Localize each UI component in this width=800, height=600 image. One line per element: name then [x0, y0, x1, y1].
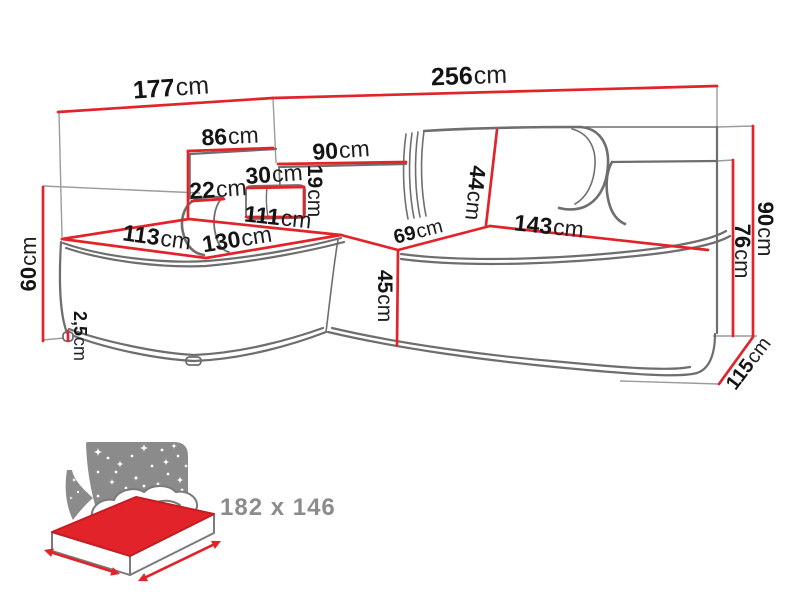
dim-line-45 [397, 250, 398, 345]
dim-label-total-height: 90cm [753, 202, 778, 257]
chaise-base-bottom-2 [69, 328, 323, 355]
dim-label-total-width: 256cm [431, 61, 508, 92]
right-armrest-top [612, 161, 717, 162]
pleat-3 [416, 132, 420, 217]
arrow-width-head-1 [44, 548, 54, 557]
dim-label-seat-width: 143cm [513, 209, 585, 242]
right-armrest-bulge [607, 162, 625, 224]
cushion-right-cap-inner [572, 129, 595, 204]
pleat-4 [422, 131, 426, 216]
dim-label-backrest-height: 44cm [460, 164, 491, 221]
chaise-base-bottom [74, 332, 326, 361]
dim-label-chaise-side-length: 130cm [200, 221, 273, 258]
night-backdrop-sliver [66, 470, 93, 520]
ref-drop-corner [273, 98, 276, 163]
ref-armrest-height-bottom [43, 338, 64, 340]
sleeping-function-icon: 182 x 146 [44, 442, 336, 581]
ref-total-height-top [717, 126, 753, 127]
ref-floor-front [620, 381, 719, 384]
dim-label-left-arm-height: 60cm [16, 237, 41, 292]
diagram-canvas: 177cm 256cm 86cm 90cm 30cm 19cm 22cm 111… [0, 0, 800, 600]
dim-label-mid-backrest-width: 90cm [312, 135, 371, 165]
dim-label-leg-height: 2,5cm [70, 311, 90, 361]
corner-seam [326, 240, 338, 332]
dim-label-headrest-width: 30cm [245, 159, 304, 189]
ref-armrest-height-top [43, 186, 200, 193]
dim-label-chaise-depth: 177cm [132, 71, 210, 104]
dim-label-front-height: 45cm [373, 270, 396, 322]
chaise-base-left [60, 242, 67, 333]
pleat-2 [410, 133, 414, 218]
sofa-dimension-diagram: 177cm 256cm 86cm 90cm 30cm 19cm 22cm 111… [0, 0, 800, 600]
sleeping-area-size: 182 x 146 [220, 494, 336, 521]
dim-label-right-arm-height: 76cm [730, 224, 755, 279]
ref-right-arm-top [717, 160, 733, 161]
dim-label-armrest-width: 22cm [189, 174, 248, 204]
pleat-1 [404, 134, 408, 219]
dim-line-seam [341, 235, 398, 250]
dim-label-left-backrest-width: 86cm [201, 122, 260, 151]
cushion-top [424, 127, 581, 131]
ref-drop-left [59, 112, 62, 237]
